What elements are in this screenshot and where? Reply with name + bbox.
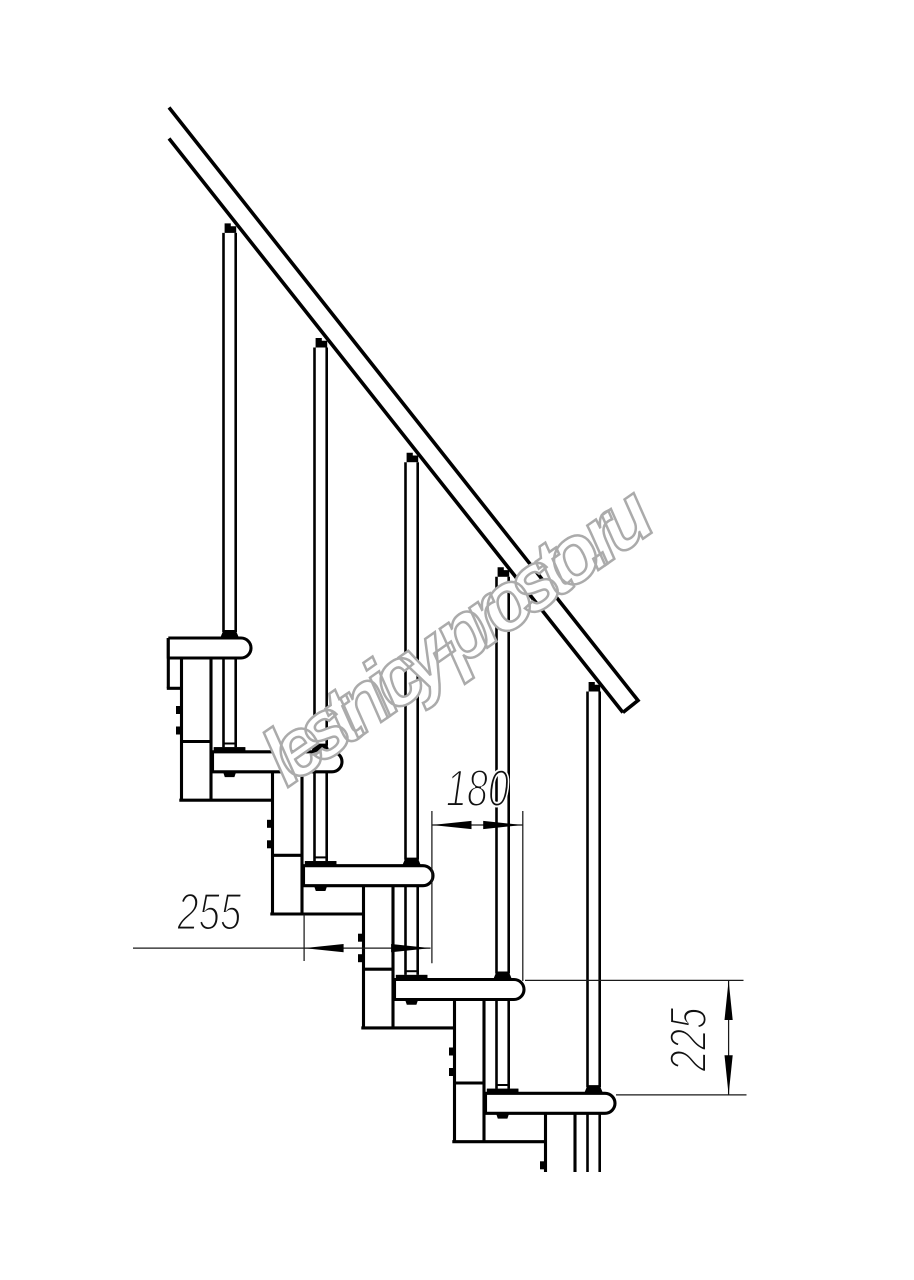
svg-text:180: 180 (446, 760, 509, 818)
svg-text:lestnicy-prosto.ru: lestnicy-prosto.ru (246, 469, 670, 803)
svg-text:225: 225 (660, 1007, 718, 1073)
svg-text:255: 255 (177, 884, 243, 942)
